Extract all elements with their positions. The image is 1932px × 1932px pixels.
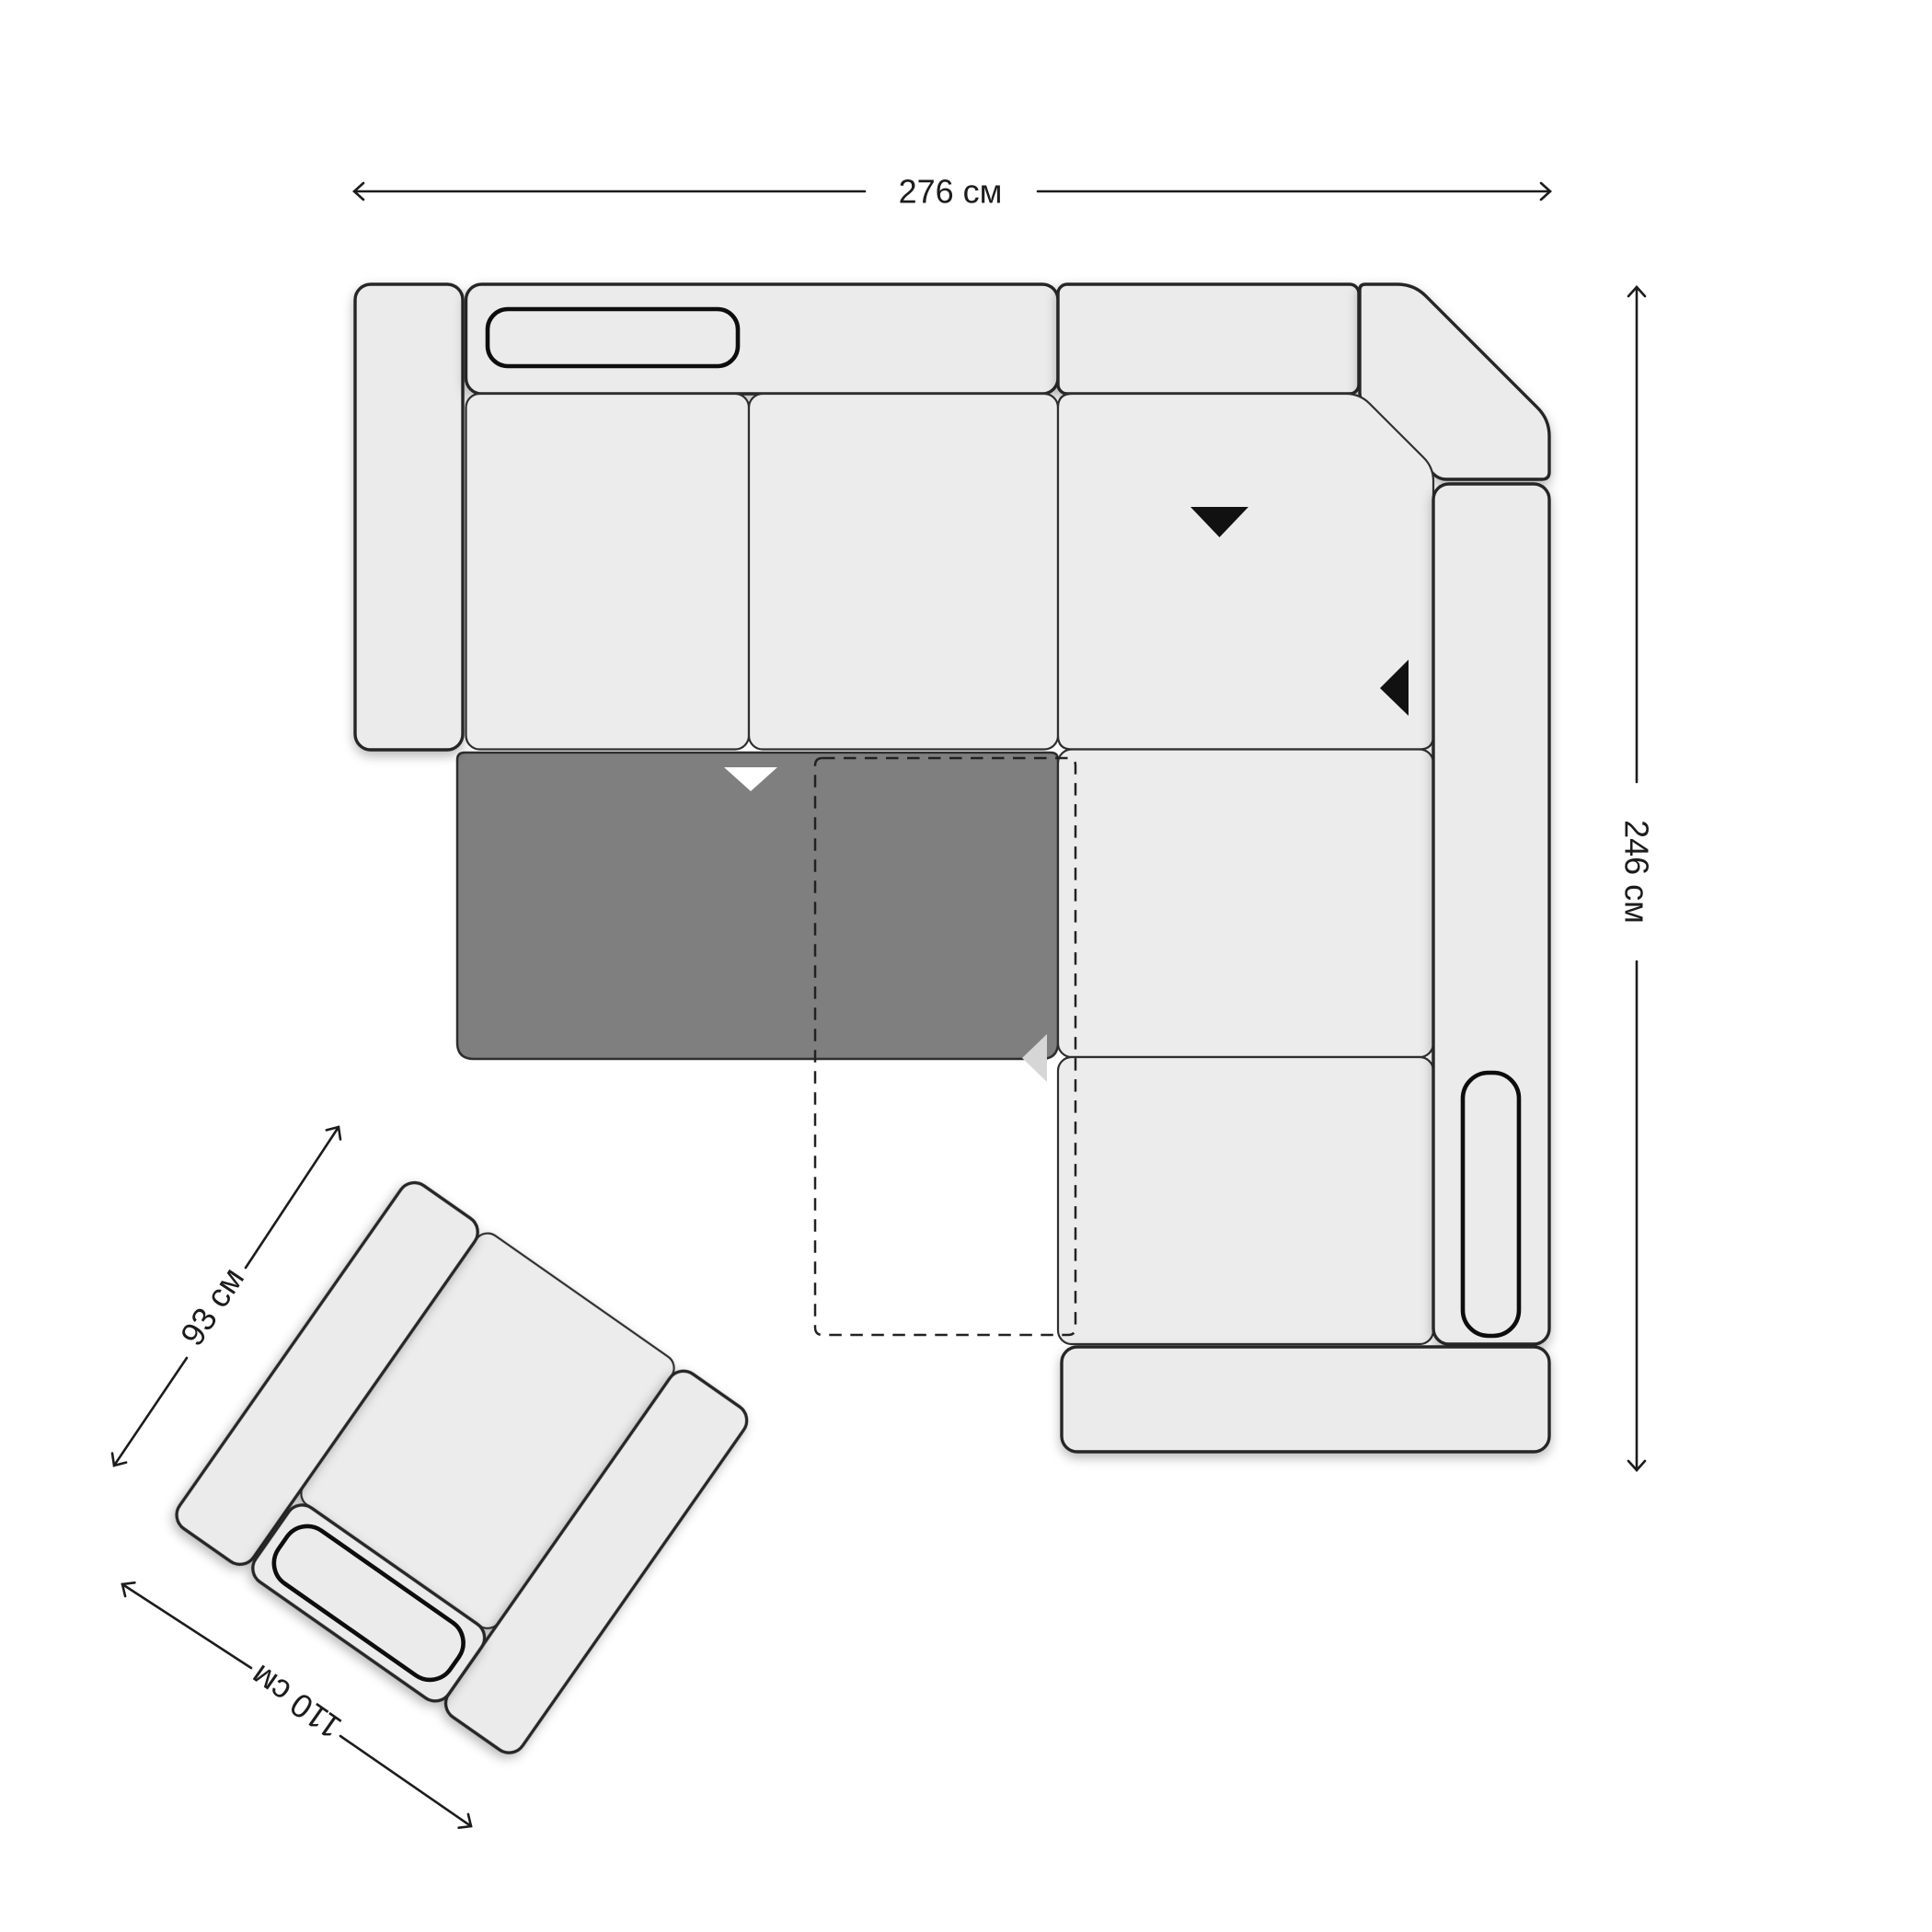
svg-text:246 см: 246 см: [1618, 820, 1656, 924]
svg-text:276 см: 276 см: [899, 173, 1003, 211]
